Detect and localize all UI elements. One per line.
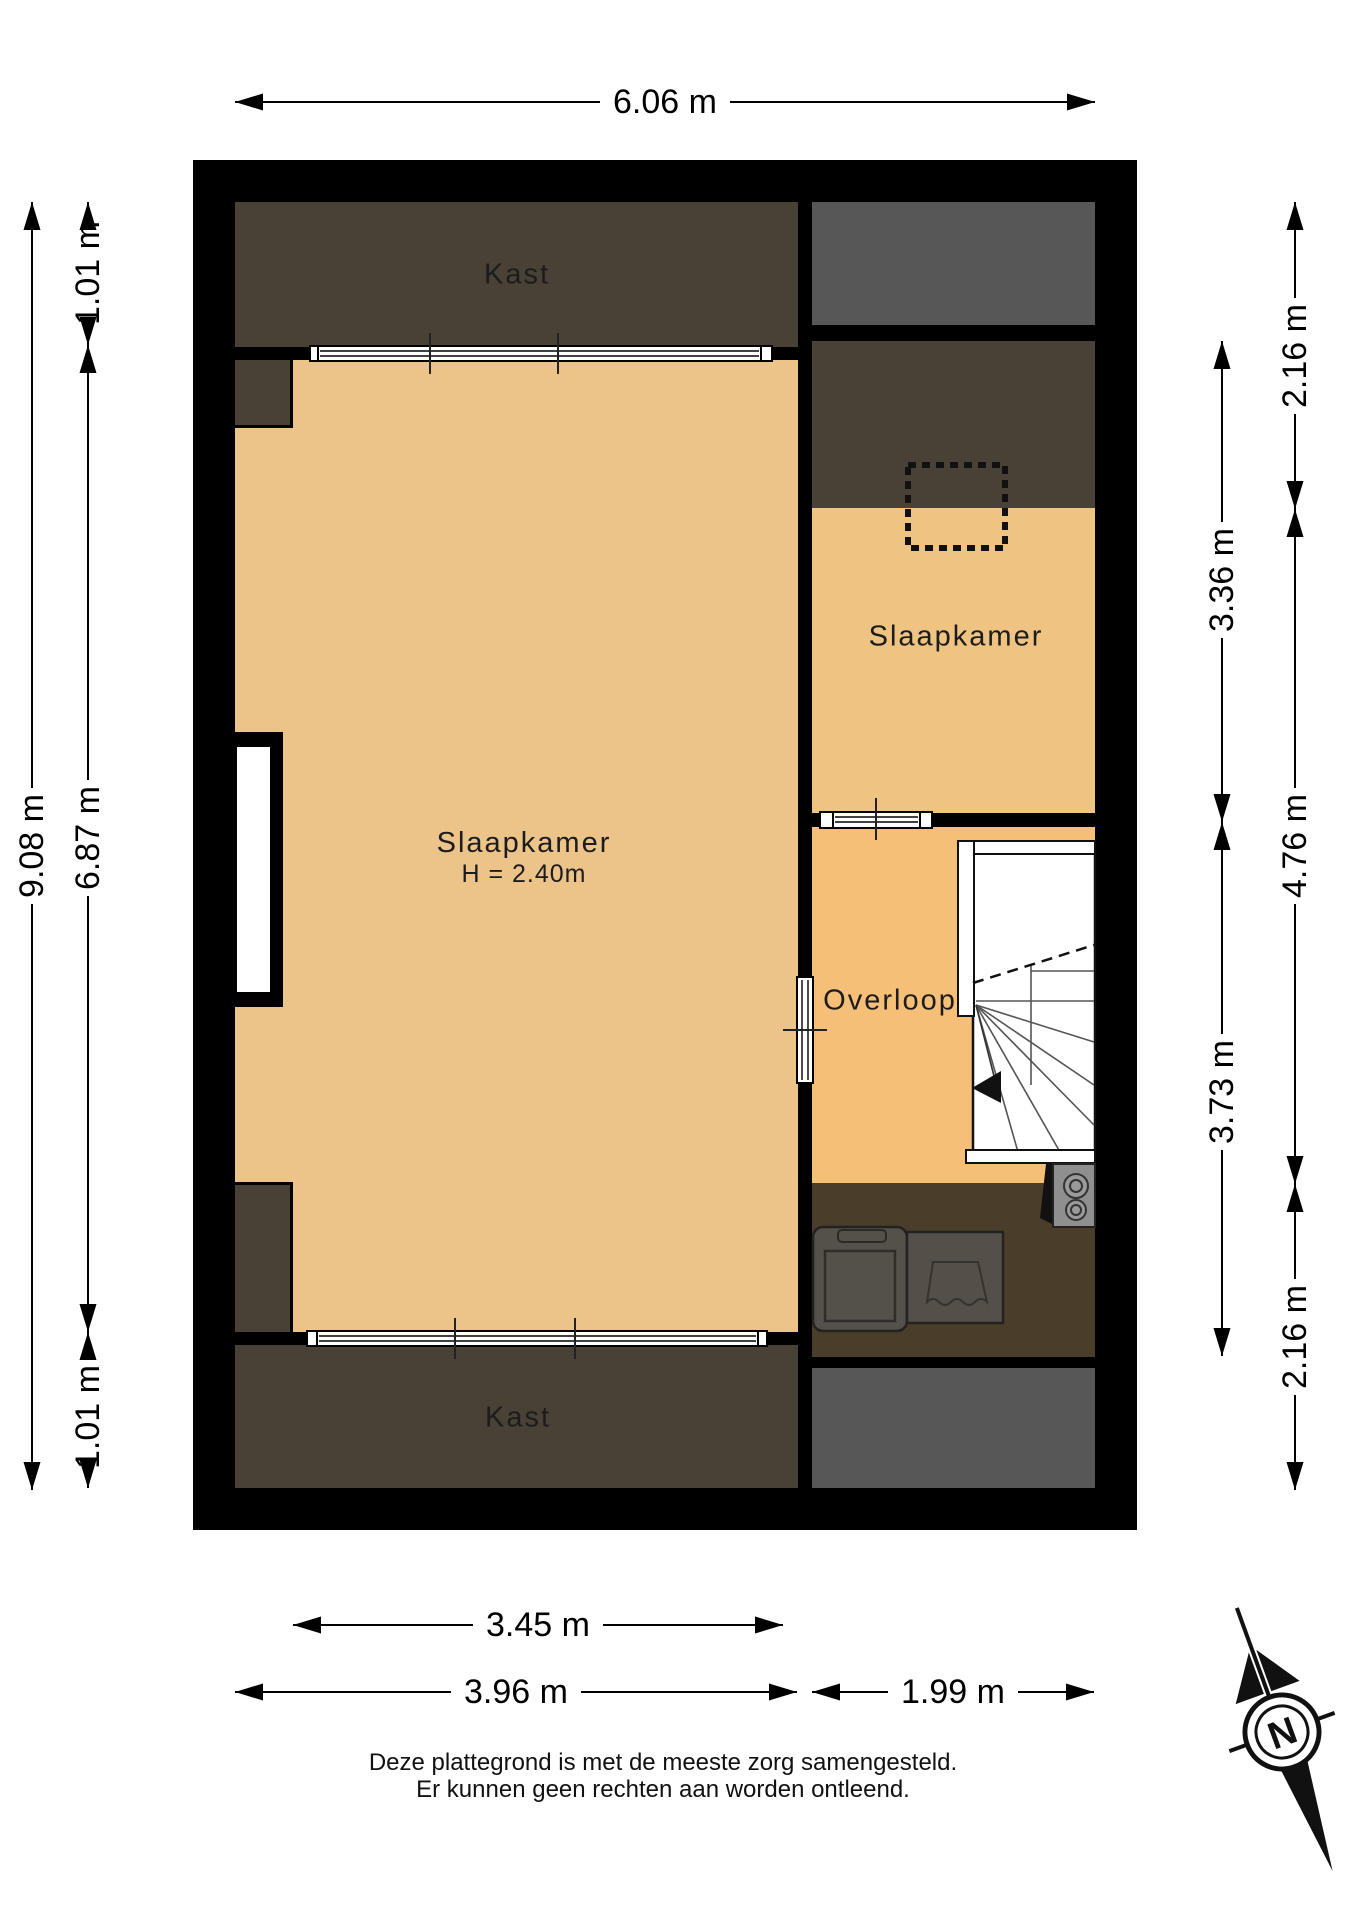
- disclaimer-line-1: Deze plattegrond is met de meeste zorg s…: [363, 1749, 963, 1776]
- svg-text:3.73 m: 3.73 m: [1203, 1040, 1241, 1144]
- svg-text:2.16 m: 2.16 m: [1276, 1285, 1314, 1389]
- dimension-left-inner-middle: 6.87 m: [69, 345, 107, 1332]
- stair-top-rail: [958, 841, 1095, 854]
- floorplan-page: Kast Slaapkamer H = 2.40m Slaapkamer Ove…: [0, 0, 1358, 1920]
- dimension-bottom-left: 3.96 m: [235, 1673, 797, 1711]
- svg-text:3.96 m: 3.96 m: [464, 1673, 568, 1711]
- svg-text:6.06 m: 6.06 m: [613, 83, 717, 121]
- laundry-basket-icon: [907, 1232, 1003, 1323]
- right-bedroom-window: [820, 798, 932, 840]
- dimension-left-outer: 9.08 m: [13, 202, 51, 1490]
- washing-machine-icon: [813, 1227, 907, 1331]
- linework-layer: 6.06 m 9.08 m 1.01 m 6.87 m 1.01 m: [0, 0, 1358, 1920]
- svg-text:1.01 m: 1.01 m: [69, 1365, 107, 1469]
- chimney-dashed-outline: [908, 465, 1005, 548]
- dimension-right-inner-lower: 3.73 m: [1203, 822, 1241, 1356]
- svg-text:6.87 m: 6.87 m: [69, 786, 107, 890]
- svg-text:9.08 m: 9.08 m: [13, 794, 51, 898]
- dimension-top: 6.06 m: [235, 83, 1095, 121]
- svg-text:4.76 m: 4.76 m: [1276, 794, 1314, 898]
- boiler-icon: [1040, 1164, 1095, 1227]
- dimension-left-inner-top: 1.01 m: [69, 202, 107, 345]
- dimension-right-outer-middle: 4.76 m: [1276, 509, 1314, 1184]
- dimension-bottom-right: 1.99 m: [812, 1673, 1094, 1711]
- dimension-right-inner-upper: 3.36 m: [1203, 341, 1241, 822]
- stair-left-rail: [958, 841, 974, 1016]
- disclaimer-line-2: Er kunnen geen rechten aan worden ontlee…: [363, 1776, 963, 1803]
- dimension-left-inner-bottom: 1.01 m: [69, 1332, 107, 1488]
- stair-bottom-rail: [966, 1150, 1095, 1163]
- top-window: [310, 333, 772, 374]
- dimension-right-outer-top: 2.16 m: [1276, 202, 1314, 509]
- svg-text:3.36 m: 3.36 m: [1203, 528, 1241, 632]
- disclaimer-text: Deze plattegrond is met de meeste zorg s…: [363, 1749, 963, 1803]
- compass-north-icon: N: [1184, 1589, 1358, 1890]
- svg-text:2.16 m: 2.16 m: [1276, 304, 1314, 408]
- staircase: [958, 841, 1095, 1163]
- bottom-window: [307, 1318, 767, 1359]
- dimension-bottom-inner: 3.45 m: [293, 1606, 783, 1644]
- svg-text:1.01 m: 1.01 m: [69, 221, 107, 325]
- svg-text:3.45 m: 3.45 m: [486, 1606, 590, 1644]
- main-bedroom-door-opening: [783, 977, 827, 1083]
- svg-text:1.99 m: 1.99 m: [901, 1673, 1005, 1711]
- dimension-right-outer-bottom: 2.16 m: [1276, 1184, 1314, 1490]
